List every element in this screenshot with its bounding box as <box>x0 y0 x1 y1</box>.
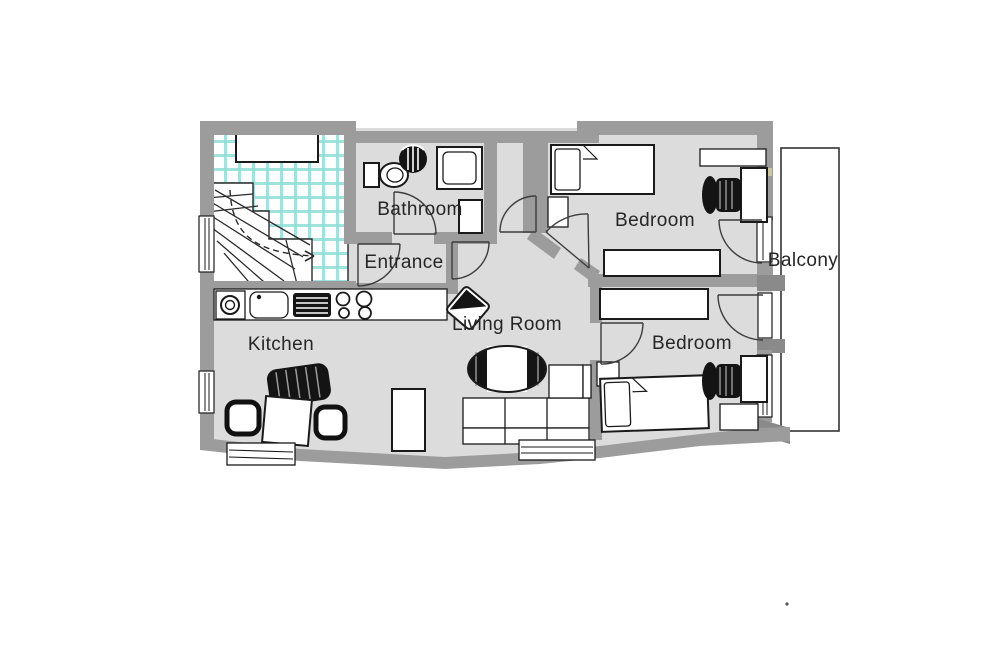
stairwell <box>207 126 348 288</box>
window-kitchen-left <box>199 371 214 413</box>
balcony-door-threshold-bedroom-bottom <box>758 293 772 338</box>
low-cabinet <box>604 250 720 276</box>
balcony-deck <box>781 148 839 431</box>
floor-plan: Bathroom Entrance Bedroom Balcony Kitche… <box>0 0 1000 658</box>
room-label-living-room: Living Room <box>452 314 562 335</box>
radiator-living <box>519 440 595 460</box>
office-chair-bottom <box>702 362 741 400</box>
desk-top <box>741 168 767 222</box>
radiator-kitchen <box>227 443 295 465</box>
dining-table <box>262 396 312 446</box>
side-table <box>720 404 758 430</box>
room-label-bedroom-bottom: Bedroom <box>652 333 732 354</box>
bed-bottom <box>600 375 709 432</box>
dining-chair-left <box>227 402 259 434</box>
room-label-bathroom: Bathroom <box>377 199 463 220</box>
office-chair-top <box>702 176 741 214</box>
pedestal-sink <box>399 145 427 173</box>
wall-bathroom-right <box>484 143 497 234</box>
room-label-kitchen: Kitchen <box>248 334 314 355</box>
dining-chair-right <box>316 407 345 438</box>
pillow <box>604 382 631 427</box>
dish-drainer <box>293 293 331 317</box>
wall-top-notch <box>577 121 599 143</box>
kitchen-sink <box>250 292 288 318</box>
room-label-bedroom-top: Bedroom <box>615 210 695 231</box>
wall-top-stairwell <box>200 121 356 135</box>
shelf-top <box>700 149 766 166</box>
shower <box>437 147 482 189</box>
wall-bathroom-bottom-a <box>356 232 392 244</box>
coffee-table <box>468 346 546 392</box>
washing-machine <box>216 291 245 319</box>
room-label-balcony: Balcony <box>768 250 838 271</box>
floor-plan-drawing: Bathroom Entrance Bedroom Balcony Kitche… <box>0 0 1000 658</box>
wall-top-bedroom <box>577 121 773 135</box>
wall-top-mid <box>350 131 585 143</box>
wardrobe-shelf <box>600 289 708 319</box>
print-artifact-dot <box>785 602 788 605</box>
room-label-entrance: Entrance <box>364 252 443 273</box>
desk-bottom <box>741 356 767 402</box>
cabinet-tall <box>392 389 425 451</box>
wall-stairwell-right-upper <box>344 121 356 244</box>
wall-balcony-stub-a <box>757 275 785 291</box>
window-stairwell-left <box>199 216 214 272</box>
pillow <box>555 149 580 190</box>
bed-top <box>551 145 654 194</box>
